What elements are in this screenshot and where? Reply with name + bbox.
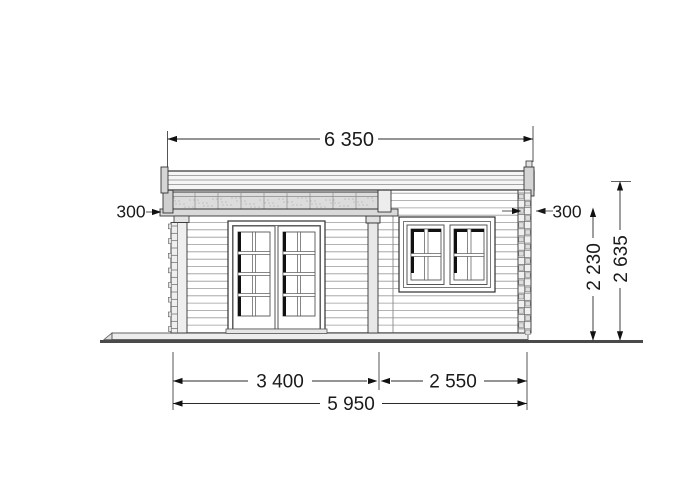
log-end (519, 266, 524, 271)
beam-stipple-dot (235, 197, 236, 198)
canopy-post (366, 216, 380, 333)
beam-stipple-dot (216, 198, 217, 199)
beam-stipple-dot (212, 198, 213, 199)
beam-stipple-dot (245, 203, 246, 204)
beam-stipple-dot (300, 204, 301, 205)
beam-stipple-dot (329, 199, 330, 200)
log-end (519, 223, 524, 228)
beam-stipple-dot (258, 206, 259, 207)
beam-stipple-dot (334, 202, 335, 203)
beam-stipple-dot (297, 197, 298, 198)
log-notch (168, 327, 171, 332)
beam-stipple-dot (273, 205, 274, 206)
beam-stipple-dot (277, 205, 278, 206)
log-end (519, 280, 524, 285)
beam-stipple-dot (319, 203, 320, 204)
beam-stipple-dot (347, 205, 348, 206)
fascia-band (165, 171, 534, 190)
log-notch (168, 253, 171, 258)
log-end (525, 301, 530, 306)
elevation-page: 6 350 300 300 2 230 2 635 3 400 2 550 5 … (0, 0, 700, 495)
beam-stipple-dot (179, 203, 180, 204)
beam-stipple-dot (230, 204, 231, 205)
beam-stipple-dot (310, 200, 311, 201)
beam-stipple-dot (339, 205, 340, 206)
beam-stipple-dot (282, 198, 283, 199)
beam-stipple-dot (184, 206, 185, 207)
beam-stipple-dot (231, 197, 232, 198)
log-end (519, 237, 524, 242)
beam-stipple-dot (320, 206, 321, 207)
beam-stipple-dot (244, 200, 245, 201)
door-sill (226, 329, 327, 334)
dim-right-overhang-label: 300 (552, 202, 581, 222)
beam-stipple-dot (222, 204, 223, 205)
beam-stipple-dot (344, 198, 345, 199)
canopy-beam-body (172, 192, 378, 209)
log-notch (168, 224, 171, 229)
beam-stipple-dot (330, 202, 331, 203)
dim-total-width-label: 5 950 (327, 394, 375, 415)
canopy-bottom-board (160, 209, 398, 216)
beam-stipple-dot (259, 199, 260, 200)
window-right-sash (450, 225, 487, 285)
door-left-leaf (233, 226, 275, 329)
beam-stipple-dot (220, 198, 221, 199)
beam-stipple-dot (240, 200, 241, 201)
beam-stipple-dot (292, 204, 293, 205)
beam-stipple-dot (249, 203, 250, 204)
log-end (525, 316, 530, 321)
beam-stipple-dot (287, 201, 288, 202)
log-notch (168, 239, 171, 244)
beam-stipple-dot (367, 197, 368, 198)
beam-stipple-dot (206, 202, 207, 203)
beam-stipple-dot (315, 203, 316, 204)
log-end (519, 309, 524, 314)
beam-stipple-dot (296, 204, 297, 205)
window-glass-shadow (454, 229, 457, 273)
dim-total-height-label: 2 635 (611, 235, 632, 283)
beam-stipple-dot (188, 206, 189, 207)
beam-stipple-dot (193, 199, 194, 200)
beam-stipple-dot (203, 205, 204, 206)
beam-stipple-dot (217, 201, 218, 202)
log-end (525, 216, 530, 221)
beam-stipple-dot (263, 199, 264, 200)
log-end (525, 201, 530, 206)
beam-stipple-dot (291, 201, 292, 202)
left-corner-logs (168, 216, 189, 333)
beam-stipple-dot (198, 202, 199, 203)
beam-stipple-dot (250, 206, 251, 207)
beam-stipple-dot (178, 200, 179, 201)
beam-stipple-dot (352, 198, 353, 199)
beam-stipple-dot (358, 204, 359, 205)
log-end (525, 330, 530, 335)
window-glass-shadow (471, 229, 484, 232)
beam-stipple-dot (314, 200, 315, 201)
right-corner-logs (518, 190, 531, 335)
beam-stipple-dot (357, 201, 358, 202)
dim-wall-height-label: 2 230 (584, 243, 605, 291)
beam-stipple-dot (372, 200, 373, 201)
beam-stipple-dot (301, 197, 302, 198)
beam-stipple-dot (366, 204, 367, 205)
log-end (519, 294, 524, 299)
beam-stipple-dot (192, 206, 193, 207)
beam-stipple-dot (225, 201, 226, 202)
fascia-left-cap (161, 167, 168, 193)
beam-stipple-dot (305, 197, 306, 198)
beam-stipple-dot (211, 205, 212, 206)
beam-stipple-dot (325, 199, 326, 200)
log-notch (168, 297, 171, 302)
log-notch (168, 268, 171, 273)
beam-stipple-dot (254, 206, 255, 207)
log-notch (168, 312, 171, 317)
beam-stipple-dot (353, 201, 354, 202)
log-end (525, 287, 530, 292)
beam-stipple-dot (207, 205, 208, 206)
dim-left-overhang-label: 300 (116, 202, 145, 222)
beam-stipple-dot (272, 202, 273, 203)
double-window (399, 217, 495, 292)
beam-stipple-dot (226, 204, 227, 205)
log-end (519, 323, 524, 328)
beam-stipple-dot (183, 203, 184, 204)
beam-stipple-dot (311, 203, 312, 204)
log-end (519, 194, 524, 199)
elevation-drawing: 6 350 300 300 2 230 2 635 3 400 2 550 5 … (0, 0, 700, 495)
beam-stipple-dot (343, 205, 344, 206)
log-notch (168, 283, 171, 288)
beam-stipple-dot (202, 202, 203, 203)
beam-stipple-dot (264, 202, 265, 203)
dim-left-section-label: 3 400 (256, 372, 304, 393)
beam-stipple-dot (268, 202, 269, 203)
log-end (525, 230, 530, 235)
door-right-leaf (278, 226, 320, 329)
beam-stipple-dot (286, 198, 287, 199)
window-glass-shadow (428, 229, 441, 232)
beam-stipple-dot (324, 206, 325, 207)
beam-stipple-dot (283, 201, 284, 202)
beam-stipple-dot (175, 203, 176, 204)
log-end (525, 273, 530, 278)
log-end (525, 259, 530, 264)
beam-stipple-dot (174, 200, 175, 201)
beam-stipple-dot (362, 204, 363, 205)
beam-stipple-dot (333, 199, 334, 200)
beam-stipple-dot (197, 199, 198, 200)
log-end (519, 251, 524, 256)
beam-stipple-dot (236, 200, 237, 201)
canopy-right-cap (378, 187, 391, 212)
beam-stipple-dot (269, 205, 270, 206)
beam-stipple-dot (338, 202, 339, 203)
floor-platform (104, 333, 528, 340)
beam-stipple-dot (348, 198, 349, 199)
beam-stipple-dot (239, 197, 240, 198)
window-glass-shadow (411, 229, 414, 273)
beam-stipple-dot (371, 197, 372, 198)
beam-stipple-dot (267, 199, 268, 200)
window-left-sash (407, 225, 444, 285)
beam-stipple-dot (173, 197, 174, 198)
beam-stipple-dot (316, 206, 317, 207)
beam-stipple-dot (189, 199, 190, 200)
beam-stipple-dot (253, 203, 254, 204)
dim-roof-width-label: 6 350 (324, 129, 374, 151)
double-glass-door (226, 221, 327, 334)
beam-stipple-dot (278, 198, 279, 199)
dim-right-section-label: 2 550 (429, 372, 477, 393)
log-end (525, 244, 530, 249)
beam-stipple-dot (306, 200, 307, 201)
beam-stipple-dot (361, 201, 362, 202)
beam-stipple-dot (221, 201, 222, 202)
